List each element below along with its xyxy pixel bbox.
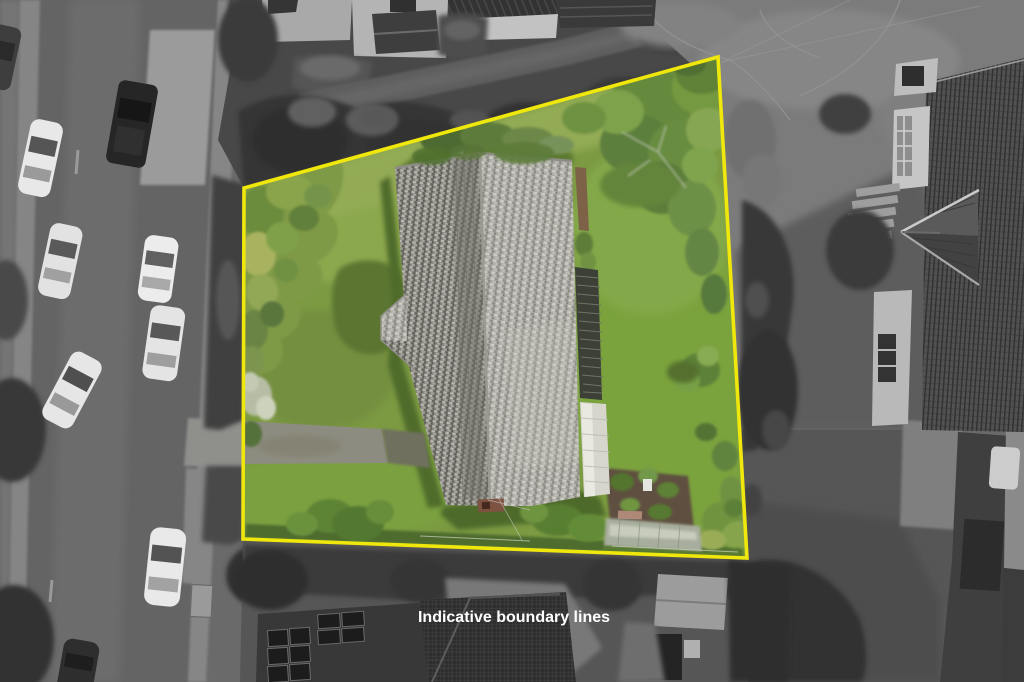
svg-text:Indicative boundary lines: Indicative boundary lines — [418, 609, 610, 626]
